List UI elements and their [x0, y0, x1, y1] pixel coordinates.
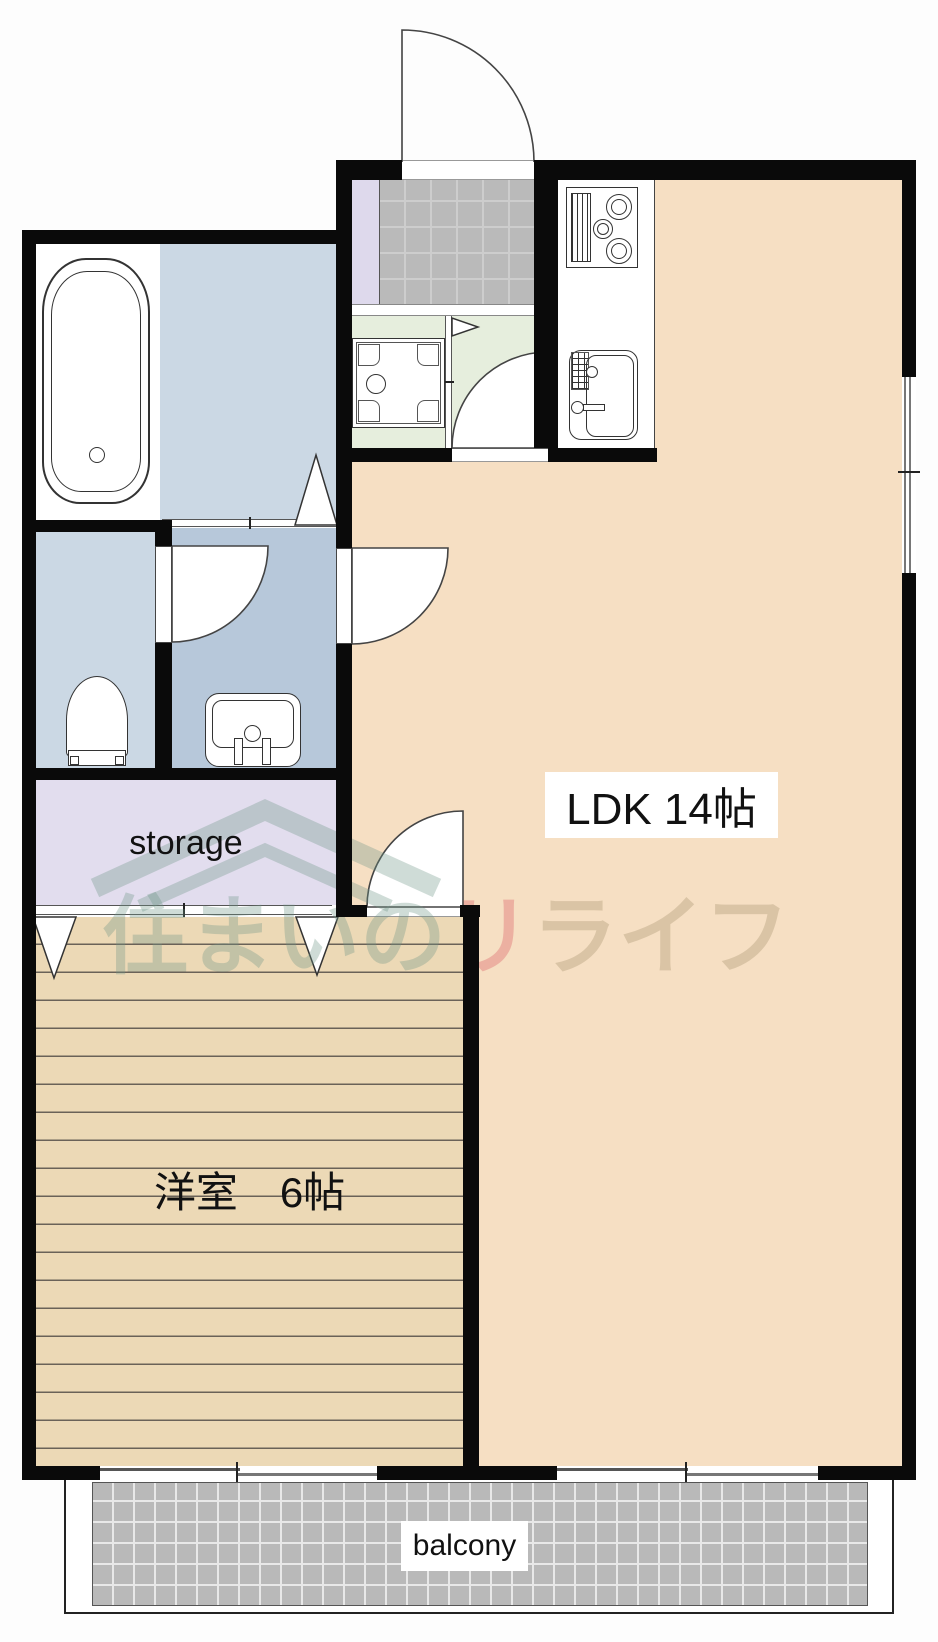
wall-kitchen — [534, 180, 558, 448]
label-storage-text: storage — [129, 824, 242, 863]
label-storage: storage — [36, 820, 336, 866]
window-western-tick — [236, 1462, 238, 1482]
entrance-step — [352, 304, 534, 316]
wall-bath-bottom — [22, 520, 162, 532]
ldk-western-doorway — [367, 905, 460, 917]
toilet-bowl — [66, 676, 128, 758]
label-western-room: 洋室 6帖 — [36, 1158, 463, 1220]
pan-tab-bl — [358, 400, 380, 422]
toilet-foot-left — [70, 756, 79, 765]
wall-bottom-b — [377, 1466, 557, 1480]
wall-hall-a — [336, 448, 452, 462]
wall-right-a — [902, 160, 916, 377]
window-right-tick — [898, 471, 920, 473]
bathtub-drain — [89, 447, 105, 463]
burner-1-inner — [611, 199, 627, 215]
washbasin-handle-right — [262, 738, 271, 765]
toilet-foot-right — [115, 756, 124, 765]
washbasin-handle-left — [234, 738, 243, 765]
sink-faucet-base — [586, 366, 598, 378]
burner-2-inner — [597, 223, 609, 235]
wall-left — [22, 230, 36, 1480]
wall-bottom-a — [22, 1466, 100, 1480]
label-ldk-text: LDK 14帖 — [566, 773, 757, 837]
storage-door-tick — [183, 903, 185, 917]
pan-drain — [366, 374, 386, 394]
window-ldk-pane2 — [686, 1473, 818, 1476]
wall-right-b — [902, 573, 916, 1480]
label-balcony-text: balcony — [413, 1529, 516, 1563]
entrance-door-swing — [402, 30, 534, 162]
wall-bottom-c — [818, 1466, 916, 1480]
window-ldk-pane1 — [557, 1468, 688, 1471]
label-ldk: LDK 14帖 — [545, 772, 778, 838]
window-western-pane2 — [238, 1473, 377, 1476]
pan-tab-tr — [417, 344, 439, 366]
wall-western-top-a — [336, 905, 367, 917]
bathroom-wet-floor — [160, 244, 336, 520]
window-ldk-tick — [685, 1462, 687, 1482]
bathroom-door-tick — [249, 517, 251, 529]
entrance-doorway — [402, 160, 534, 180]
entrance-shoe-cabinet — [352, 180, 380, 304]
wall-toilet-divider-a — [155, 520, 172, 546]
pan-tab-br — [417, 400, 439, 422]
burner-3-inner — [611, 243, 627, 259]
floor-plan: 住まいのリライフ LDK 14帖 洋室 6帖 storage balcony — [0, 0, 938, 1642]
window-western-pane1 — [100, 1468, 240, 1471]
wall-top-b — [534, 160, 916, 180]
pan-tab-tl — [358, 344, 380, 366]
wall-western-divider — [463, 905, 479, 1466]
washroom-door-leaf — [336, 548, 352, 644]
washbasin-faucet — [244, 725, 261, 742]
window-right-pane1 — [904, 377, 906, 573]
hall-ldk-doorway — [452, 448, 548, 462]
room-entrance-tiles — [380, 180, 534, 304]
window-right-pane2 — [909, 377, 911, 573]
wall-top-a — [336, 160, 402, 180]
wall-center-vert-b — [336, 644, 352, 917]
stove-grill — [571, 193, 591, 262]
wall-topleft — [22, 230, 352, 244]
wall-storage-top — [22, 768, 352, 780]
wall-hall-b — [548, 448, 657, 462]
wall-center-vert-a — [336, 160, 352, 548]
label-balcony: balcony — [401, 1521, 528, 1571]
sink-faucet-handle — [583, 404, 605, 411]
label-western-text: 洋室 6帖 — [154, 1159, 345, 1220]
toilet-door-leaf — [155, 546, 172, 643]
wall-toilet-divider-b — [155, 643, 172, 768]
